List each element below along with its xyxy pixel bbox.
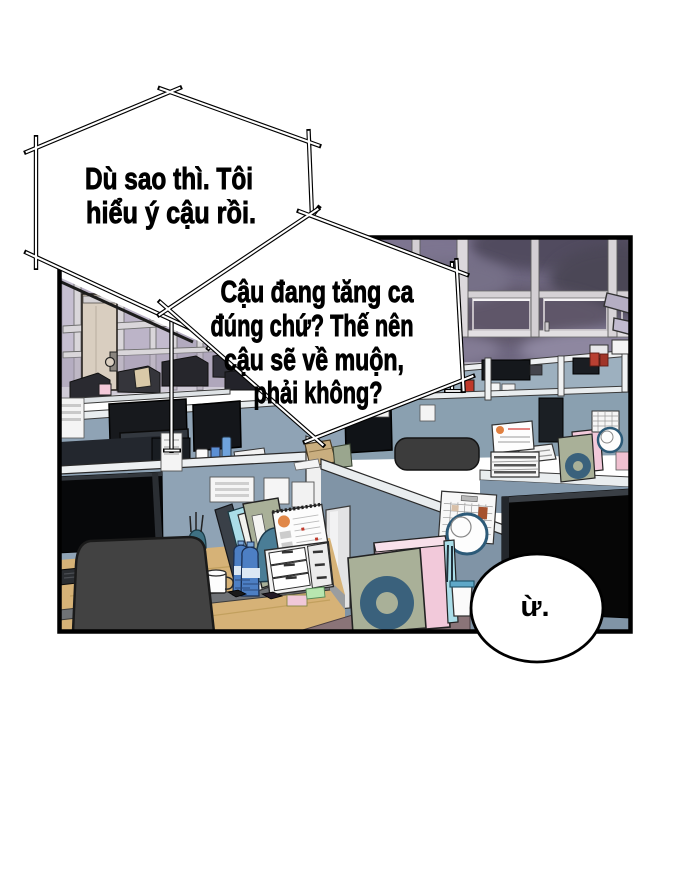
svg-text:cậu sẽ về muộn,: cậu sẽ về muộn, (224, 343, 404, 377)
svg-text:ừ.: ừ. (520, 591, 549, 623)
svg-text:hiểu ý cậu rồi.: hiểu ý cậu rồi. (86, 196, 256, 230)
svg-text:phải không?: phải không? (254, 376, 383, 410)
svg-text:Dù sao thì. Tôi: Dù sao thì. Tôi (85, 162, 253, 196)
svg-text:Cậu đang tăng ca: Cậu đang tăng ca (221, 275, 415, 309)
svg-text:đúng chứ? Thế nên: đúng chứ? Thế nên (211, 309, 414, 343)
